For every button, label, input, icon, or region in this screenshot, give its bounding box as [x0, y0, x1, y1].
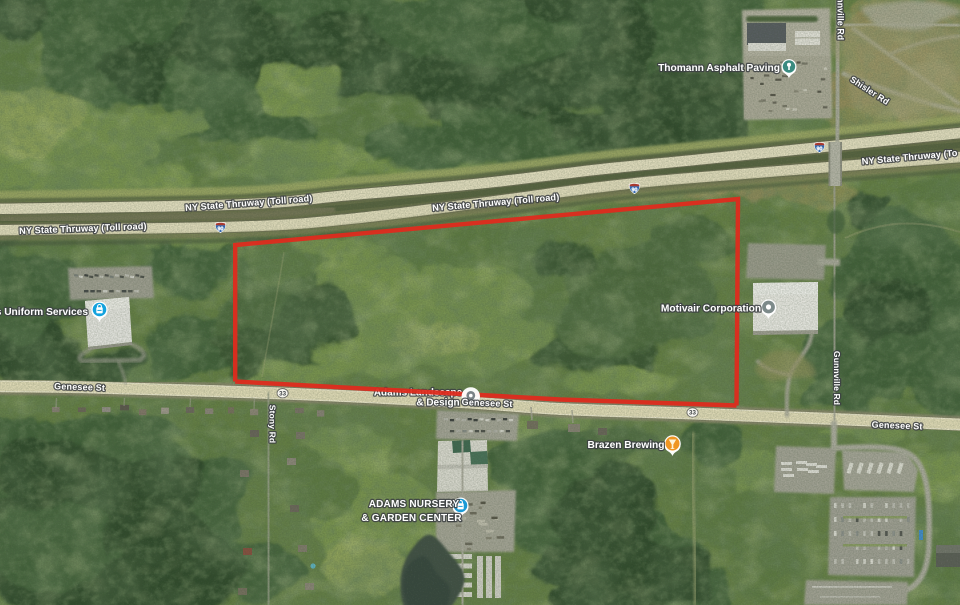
svg-text:33: 33 [689, 410, 696, 417]
svg-text:Brazen Brewing: Brazen Brewing [588, 440, 665, 451]
svg-text:90: 90 [817, 146, 823, 152]
svg-text:Motivair Corporation: Motivair Corporation [661, 304, 761, 315]
svg-text:33: 33 [279, 390, 286, 397]
svg-text:unnville Rd: unnville Rd [836, 0, 846, 40]
svg-text:Genesee St: Genesee St [871, 420, 922, 432]
svg-text:Genesee St: Genesee St [461, 397, 512, 409]
svg-text:Stony Rd: Stony Rd [268, 405, 278, 444]
svg-text:ADAMS NURSERY: ADAMS NURSERY [369, 499, 460, 510]
svg-text:& Design: & Design [416, 398, 459, 409]
svg-text:as Uniform Services: as Uniform Services [0, 307, 88, 318]
svg-text:90: 90 [632, 187, 638, 193]
svg-text:90: 90 [218, 226, 224, 232]
svg-text:Gunnville Rd: Gunnville Rd [832, 351, 842, 405]
svg-text:Genesee St: Genesee St [54, 381, 105, 393]
svg-text:Thomann Asphalt Paving: Thomann Asphalt Paving [658, 63, 780, 74]
svg-text:& GARDEN CENTER: & GARDEN CENTER [361, 513, 462, 524]
